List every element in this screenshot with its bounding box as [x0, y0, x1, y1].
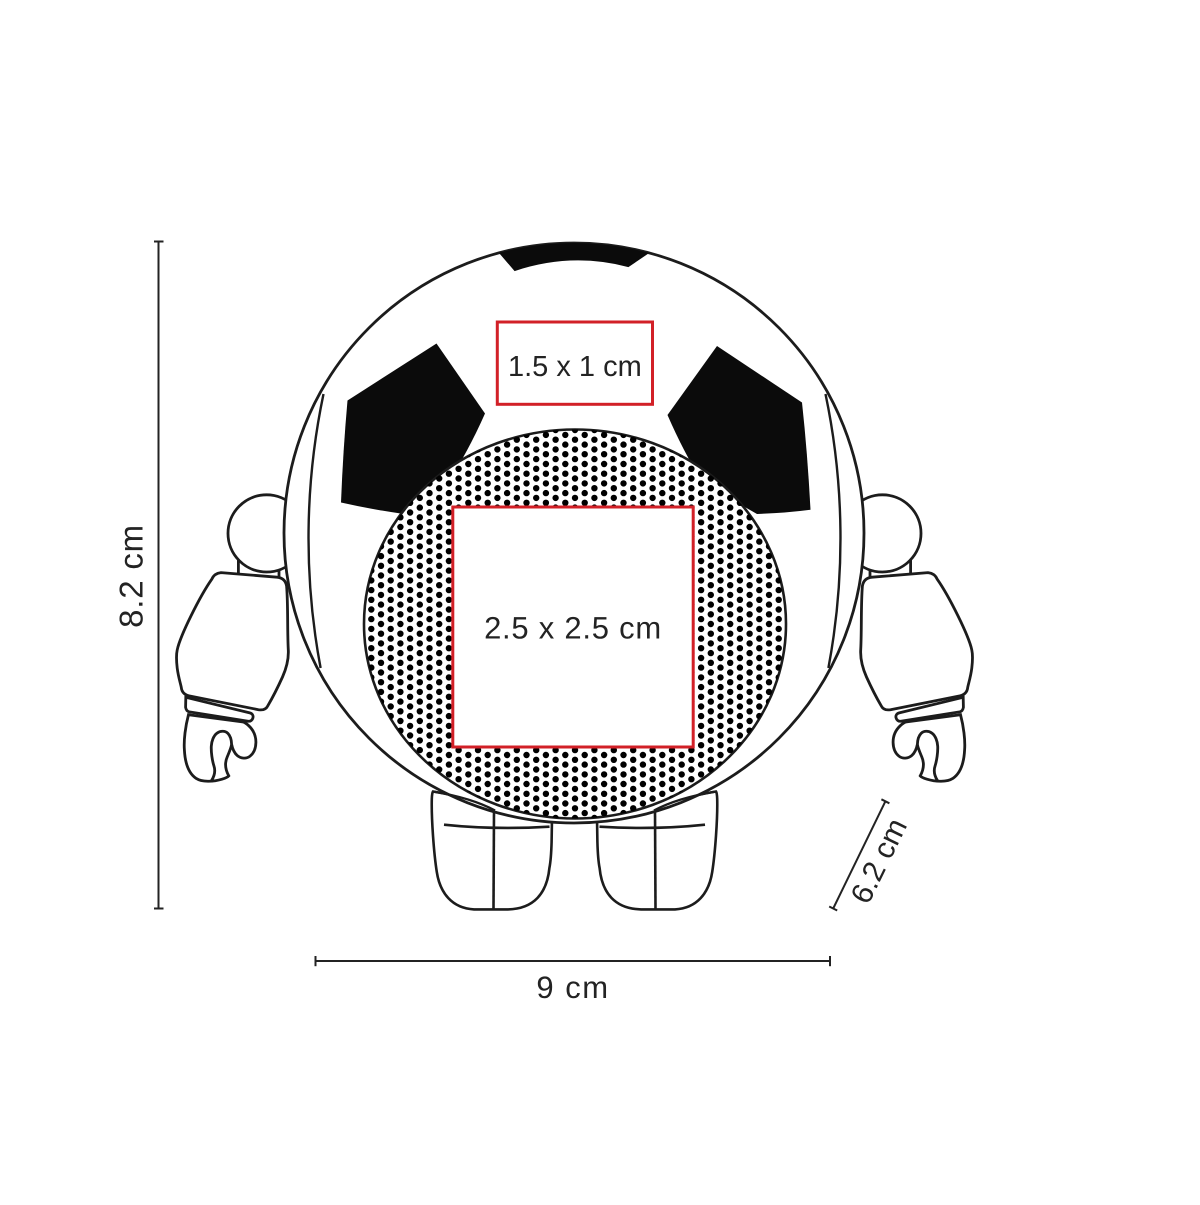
- svg-text:8.2 cm: 8.2 cm: [113, 524, 150, 628]
- svg-text:9 cm: 9 cm: [536, 970, 609, 1005]
- svg-text:1.5 x 1 cm: 1.5 x 1 cm: [508, 351, 642, 383]
- svg-text:2.5 x 2.5 cm: 2.5 x 2.5 cm: [484, 611, 662, 646]
